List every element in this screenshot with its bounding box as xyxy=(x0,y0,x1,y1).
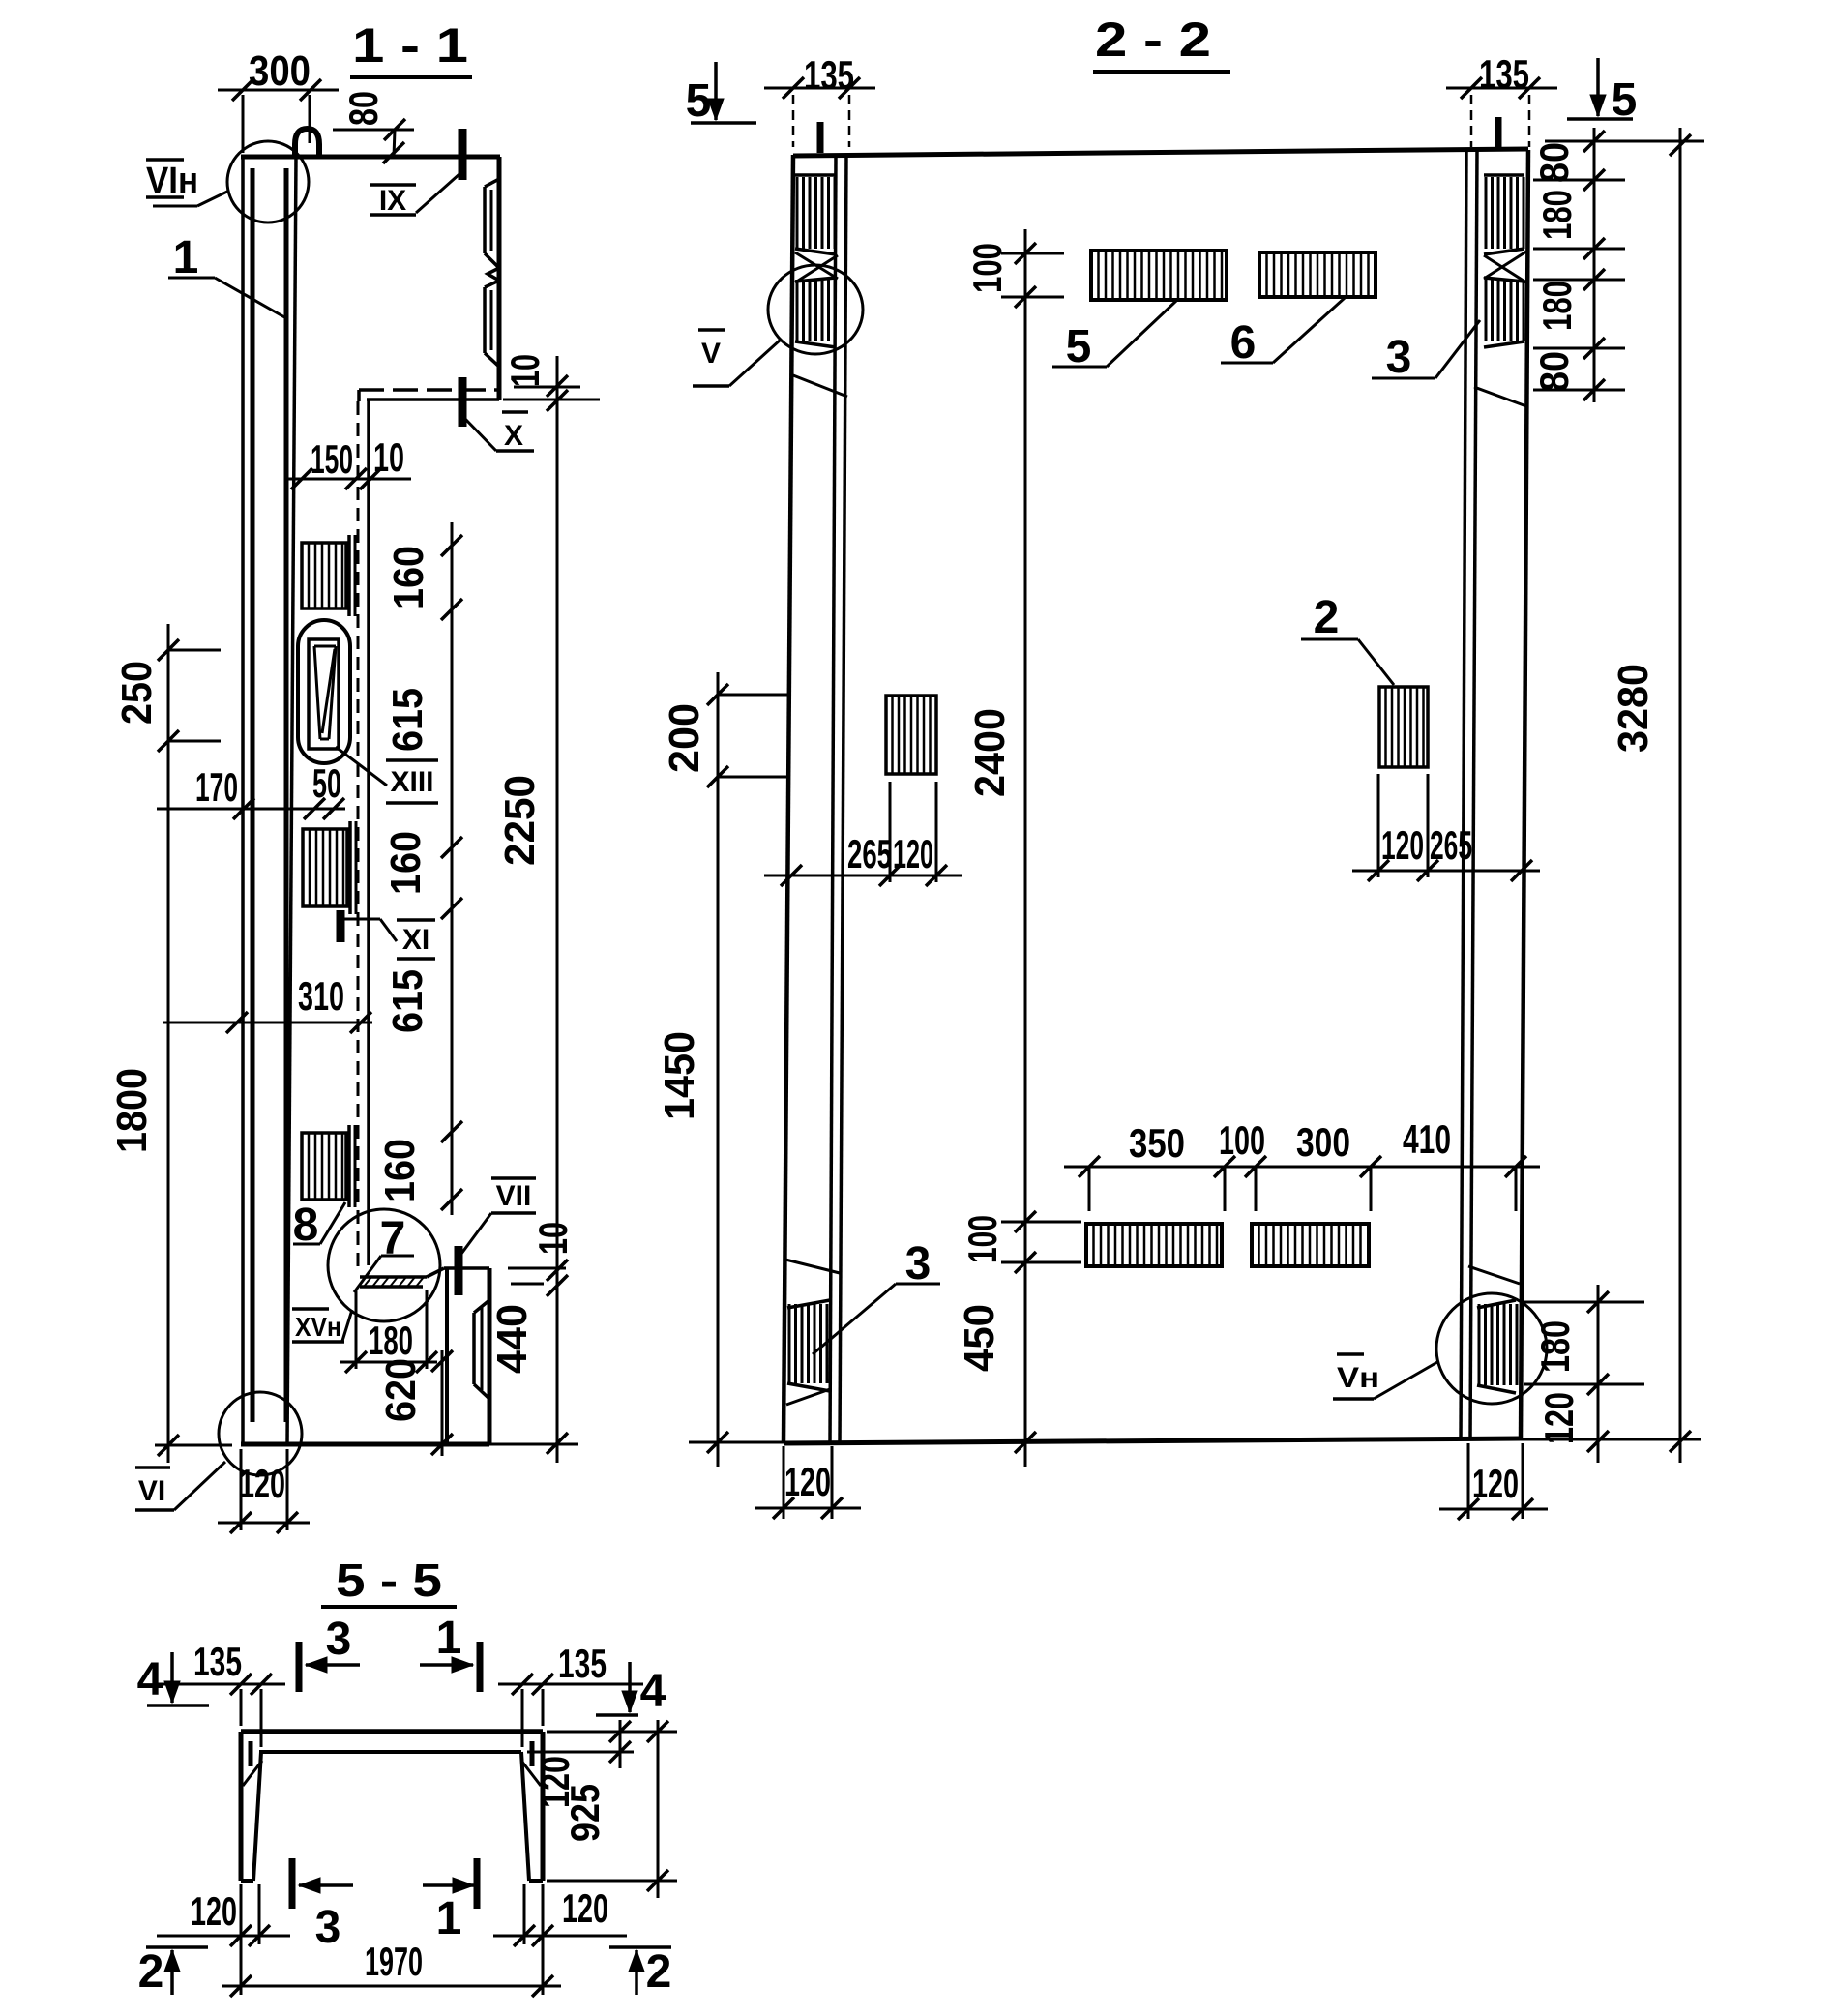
svg-text:1: 1 xyxy=(173,232,199,283)
svg-text:120: 120 xyxy=(562,1885,608,1931)
svg-text:160: 160 xyxy=(385,546,432,609)
svg-text:160: 160 xyxy=(376,1139,424,1202)
svg-text:2400: 2400 xyxy=(966,708,1014,797)
svg-text:X: X xyxy=(504,420,523,452)
svg-text:620: 620 xyxy=(377,1358,425,1422)
svg-text:XVн: XVн xyxy=(295,1312,341,1342)
svg-text:80: 80 xyxy=(340,91,386,126)
svg-text:170: 170 xyxy=(195,764,238,810)
svg-text:5 - 5: 5 - 5 xyxy=(336,1556,442,1607)
svg-text:160: 160 xyxy=(382,831,429,895)
svg-text:100: 100 xyxy=(960,1215,1005,1263)
svg-text:2: 2 xyxy=(1314,592,1340,643)
svg-text:4: 4 xyxy=(640,1666,666,1717)
svg-text:10: 10 xyxy=(502,354,548,387)
svg-text:135: 135 xyxy=(193,1639,242,1684)
svg-text:VI: VI xyxy=(138,1475,165,1507)
svg-text:310: 310 xyxy=(298,973,344,1019)
svg-text:2: 2 xyxy=(646,1946,672,1998)
svg-text:100: 100 xyxy=(964,243,1010,293)
svg-text:440: 440 xyxy=(488,1304,536,1374)
svg-text:120: 120 xyxy=(893,831,933,876)
svg-text:3: 3 xyxy=(1386,332,1412,383)
svg-text:2250: 2250 xyxy=(496,775,544,866)
svg-text:615: 615 xyxy=(384,688,431,752)
svg-text:50: 50 xyxy=(312,760,341,806)
svg-text:120: 120 xyxy=(191,1888,237,1934)
svg-text:4: 4 xyxy=(137,1654,163,1705)
svg-text:1 - 1: 1 - 1 xyxy=(352,18,468,73)
svg-text:180: 180 xyxy=(1532,1320,1578,1373)
svg-text:1: 1 xyxy=(436,1613,462,1664)
svg-text:3: 3 xyxy=(905,1238,932,1290)
svg-text:6: 6 xyxy=(1230,317,1257,369)
svg-text:100: 100 xyxy=(1219,1117,1265,1163)
svg-text:450: 450 xyxy=(956,1304,1003,1372)
svg-text:300: 300 xyxy=(249,47,311,95)
svg-text:265: 265 xyxy=(847,831,892,876)
svg-text:250: 250 xyxy=(113,661,161,725)
svg-text:IX: IX xyxy=(379,185,406,217)
svg-text:135: 135 xyxy=(1479,51,1529,97)
svg-text:925: 925 xyxy=(562,1784,607,1842)
svg-text:1800: 1800 xyxy=(108,1068,156,1153)
svg-text:3280: 3280 xyxy=(1610,664,1657,753)
svg-text:120: 120 xyxy=(239,1461,285,1506)
svg-text:VII: VII xyxy=(496,1180,532,1212)
svg-text:80: 80 xyxy=(1531,142,1577,183)
svg-text:120: 120 xyxy=(1536,1392,1582,1444)
svg-text:180: 180 xyxy=(1534,281,1580,331)
svg-text:5: 5 xyxy=(686,75,712,127)
svg-text:10: 10 xyxy=(530,1222,576,1255)
svg-text:120: 120 xyxy=(784,1459,831,1504)
svg-text:3: 3 xyxy=(326,1614,352,1665)
svg-text:Vн: Vн xyxy=(1337,1362,1379,1394)
svg-text:3: 3 xyxy=(315,1902,341,1953)
svg-text:V: V xyxy=(701,338,721,370)
svg-text:350: 350 xyxy=(1129,1120,1185,1166)
svg-text:135: 135 xyxy=(558,1641,607,1686)
svg-text:VIн: VIн xyxy=(146,161,198,201)
svg-text:150: 150 xyxy=(311,436,353,482)
svg-text:200: 200 xyxy=(661,703,708,773)
svg-text:410: 410 xyxy=(1403,1116,1451,1162)
svg-text:1970: 1970 xyxy=(365,1939,423,1984)
svg-text:XIII: XIII xyxy=(390,766,433,798)
svg-text:300: 300 xyxy=(1296,1119,1350,1165)
svg-text:XI: XI xyxy=(402,924,429,956)
svg-text:1450: 1450 xyxy=(656,1031,703,1120)
svg-text:2: 2 xyxy=(138,1946,164,1998)
svg-text:5: 5 xyxy=(1066,321,1092,372)
svg-text:615: 615 xyxy=(384,969,431,1033)
svg-text:80: 80 xyxy=(1531,351,1577,392)
svg-text:180: 180 xyxy=(1534,190,1580,240)
svg-text:1: 1 xyxy=(436,1893,462,1944)
svg-text:180: 180 xyxy=(369,1318,413,1363)
svg-text:2 - 2: 2 - 2 xyxy=(1095,13,1211,67)
